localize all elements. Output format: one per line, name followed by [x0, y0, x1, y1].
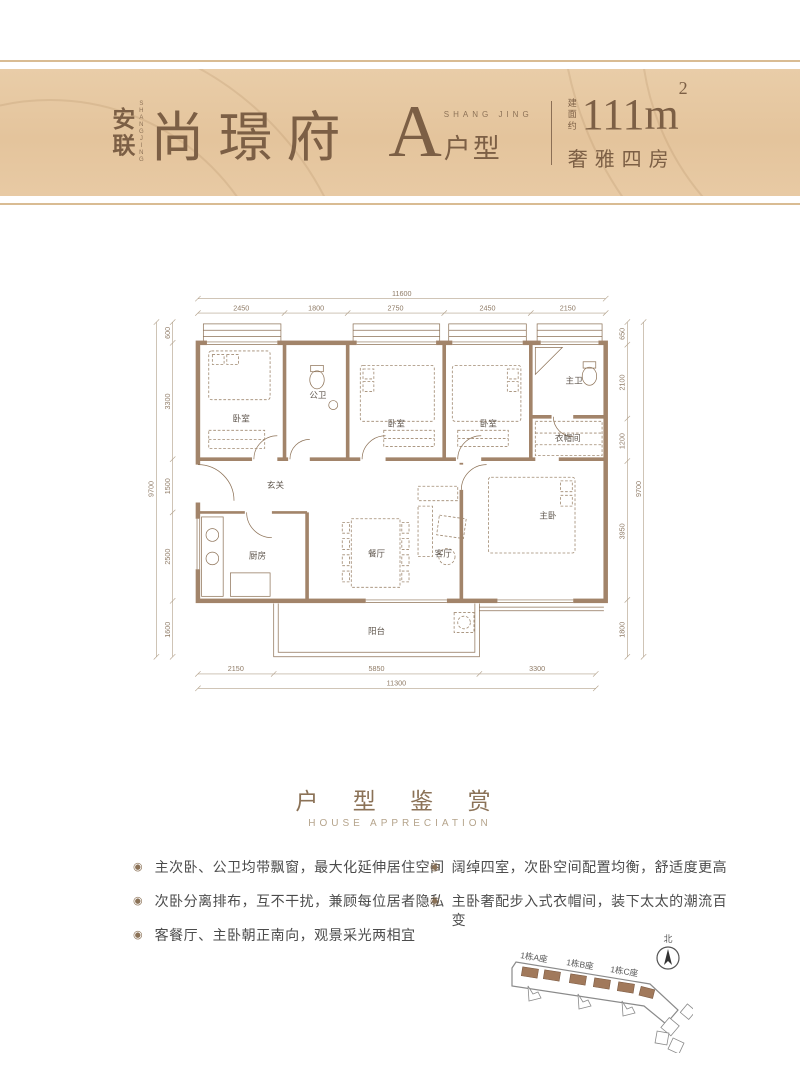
- site-plan: 1栋A座 1栋B座 1栋C座 北: [498, 928, 693, 1058]
- room-label-living: 客厅: [435, 548, 453, 559]
- unit-type-en: SHANG JING: [444, 110, 533, 119]
- unit-type-letter: A: [388, 99, 441, 166]
- banner-content: 安 联 SHANGJING 尚璟府 A SHANG JING 户型 建 面: [0, 69, 800, 196]
- dim-top-seg: 2450: [479, 303, 495, 312]
- brand-logo: 安 联 SHANGJING: [112, 101, 150, 164]
- brand-char-1: 安: [112, 107, 135, 132]
- bullet-text: 主卧奢配步入式衣帽间，装下太太的潮流百变: [452, 892, 730, 930]
- area-group: 建 面 约 111m2 奢雅四房: [568, 93, 688, 172]
- dim-right-seg: 650: [618, 328, 627, 340]
- bullet-icon: ◉: [430, 858, 440, 877]
- bullet-icon: ◉: [133, 926, 143, 945]
- building-label-a: 1栋A座: [520, 950, 549, 964]
- bullet-icon: ◉: [430, 892, 440, 911]
- dim-left-seg: 3300: [163, 393, 172, 409]
- room-label-bedroom3: 卧室: [480, 418, 498, 429]
- floor-plan: 11600 2450 1800 2750 2450 2150 2150 5850…: [140, 286, 660, 710]
- banner-top-rule: [0, 60, 800, 62]
- project-name: 尚璟府: [150, 93, 354, 172]
- unit-type-group: A SHANG JING 户型: [388, 99, 532, 166]
- dim-bottom-overall: 11300: [387, 679, 407, 688]
- room-label-public-bath: 公卫: [309, 390, 327, 400]
- bullet-item: ◉ 主次卧、公卫均带飘窗，最大化延伸居住空间: [133, 858, 463, 877]
- bullet-text: 主次卧、公卫均带飘窗，最大化延伸居住空间: [155, 858, 445, 877]
- room-label-master-bedroom: 主卧: [539, 510, 557, 521]
- bullet-icon: ◉: [133, 858, 143, 877]
- north-indicator: 北: [657, 934, 679, 969]
- dim-left-seg: 1500: [163, 478, 172, 494]
- room-label-bedroom2: 卧室: [388, 418, 406, 429]
- area-prefix: 建 面 约: [568, 98, 577, 132]
- brand-name-en: SHANGJING: [138, 101, 144, 164]
- dim-top-seg: 2750: [387, 303, 403, 312]
- dim-right-seg: 1800: [618, 622, 627, 638]
- dim-chain-bottom: 2150 5850 3300 11300: [195, 664, 598, 691]
- compass-needle: [664, 949, 672, 965]
- unit-type-label: 户型: [444, 127, 533, 166]
- building-label-c: 1栋C座: [610, 964, 640, 978]
- bullet-item: ◉ 主卧奢配步入式衣帽间，装下太太的潮流百变: [430, 892, 730, 930]
- dim-chain-right: 650 2100 1200 3950 1800 9700: [618, 319, 647, 659]
- banner-divider: [551, 101, 552, 165]
- dim-right-seg: 3950: [618, 523, 627, 539]
- area-prefix-char: 面: [568, 109, 577, 120]
- bullet-text: 阔绰四室，次卧空间配置均衡，舒适度更高: [452, 858, 728, 877]
- north-label: 北: [663, 934, 672, 944]
- area-value: 111m2: [582, 93, 688, 137]
- bullet-item: ◉ 阔绰四室，次卧空间配置均衡，舒适度更高: [430, 858, 730, 877]
- room-label-bedroom1: 卧室: [233, 412, 251, 423]
- dim-left-seg: 1600: [163, 622, 172, 638]
- room-label-foyer: 玄关: [267, 479, 285, 490]
- bullet-text: 客餐厅、主卧朝正南向，观景采光两相宜: [155, 926, 416, 945]
- brand-char-2: 联: [112, 133, 135, 158]
- building-strip: [512, 962, 693, 1053]
- area-prefix-char: 约: [568, 121, 577, 132]
- dim-top-seg: 2150: [560, 303, 576, 312]
- floor-plan-svg: 11600 2450 1800 2750 2450 2150 2150 5850…: [140, 286, 660, 710]
- area-prefix-char: 建: [568, 98, 577, 109]
- room-label-cloakroom: 衣帽间: [555, 432, 581, 443]
- building-label-b: 1栋B座: [566, 957, 595, 971]
- room-label-balcony: 阳台: [368, 625, 385, 636]
- dim-chain-top: 11600 2450 1800 2750 2450 2150: [195, 289, 608, 316]
- balcony-outline: [274, 604, 604, 657]
- furniture: [202, 347, 603, 632]
- openings: [194, 339, 598, 604]
- area-superscript: 2: [679, 78, 688, 98]
- dim-left-overall: 9700: [147, 481, 156, 497]
- section-title: 户 型 鉴 赏: [0, 782, 800, 816]
- dim-chain-left: 600 3300 1500 2500 1600 9700: [147, 319, 176, 659]
- dim-bottom-seg: 2150: [228, 664, 244, 673]
- page: { "banner": { "brand_cn_1": "安", "brand_…: [0, 0, 800, 1077]
- room-label-master-bath: 主卫: [566, 374, 584, 385]
- dim-top-seg: 1800: [308, 303, 324, 312]
- tagline: 奢雅四房: [568, 143, 688, 172]
- dim-left-seg: 600: [163, 327, 172, 339]
- header-banner: 安 联 SHANGJING 尚璟府 A SHANG JING 户型 建 面: [0, 69, 800, 196]
- dim-left-seg: 2500: [163, 549, 172, 565]
- dim-right-overall: 9700: [634, 481, 643, 497]
- room-label-dining: 餐厅: [368, 549, 386, 559]
- site-plan-svg: 1栋A座 1栋B座 1栋C座 北: [498, 928, 693, 1053]
- brand-name-cn: 安 联: [112, 107, 135, 158]
- dim-right-seg: 2100: [618, 375, 627, 391]
- section-subtitle: HOUSE APPRECIATION: [0, 818, 800, 829]
- bullet-item: ◉ 客餐厅、主卧朝正南向，观景采光两相宜: [133, 926, 463, 945]
- dim-bottom-seg: 5850: [369, 664, 385, 673]
- banner-bottom-rule: [0, 203, 800, 205]
- bullet-icon: ◉: [133, 892, 143, 911]
- dim-right-seg: 1200: [618, 433, 627, 449]
- dim-top-seg: 2450: [233, 303, 249, 312]
- bullet-item: ◉ 次卧分离排布，互不干扰，兼顾每位居者隐私: [133, 892, 463, 911]
- room-label-kitchen: 厨房: [249, 549, 266, 560]
- dim-bottom-seg: 3300: [529, 664, 545, 673]
- dim-top-overall: 11600: [392, 289, 412, 298]
- bullet-text: 次卧分离排布，互不干扰，兼顾每位居者隐私: [155, 892, 445, 911]
